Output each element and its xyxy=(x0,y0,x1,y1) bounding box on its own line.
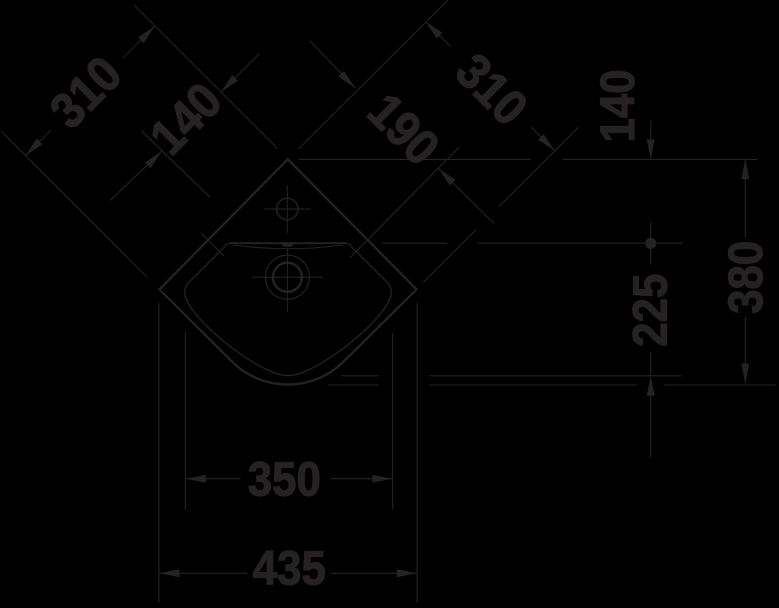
svg-text:380: 380 xyxy=(720,241,773,314)
svg-text:140: 140 xyxy=(592,70,645,143)
svg-text:435: 435 xyxy=(253,543,326,596)
svg-text:225: 225 xyxy=(625,274,678,347)
svg-text:350: 350 xyxy=(248,453,321,506)
